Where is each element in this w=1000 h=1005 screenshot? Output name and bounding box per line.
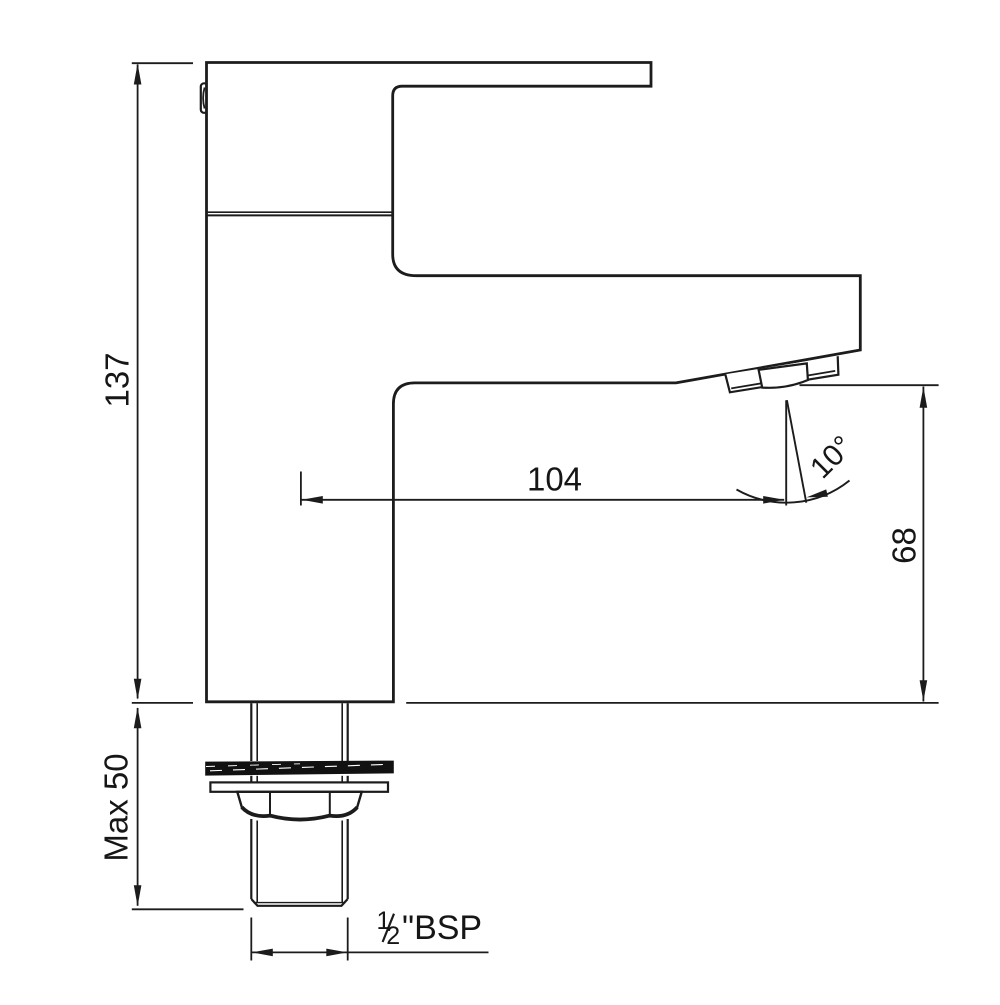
svg-text:2: 2 xyxy=(386,922,400,950)
svg-text:"BSP: "BSP xyxy=(402,909,482,947)
svg-text:104: 104 xyxy=(527,461,582,498)
svg-text:137: 137 xyxy=(99,352,136,407)
svg-text:68: 68 xyxy=(886,527,923,564)
svg-text:Max 50: Max 50 xyxy=(98,753,135,861)
